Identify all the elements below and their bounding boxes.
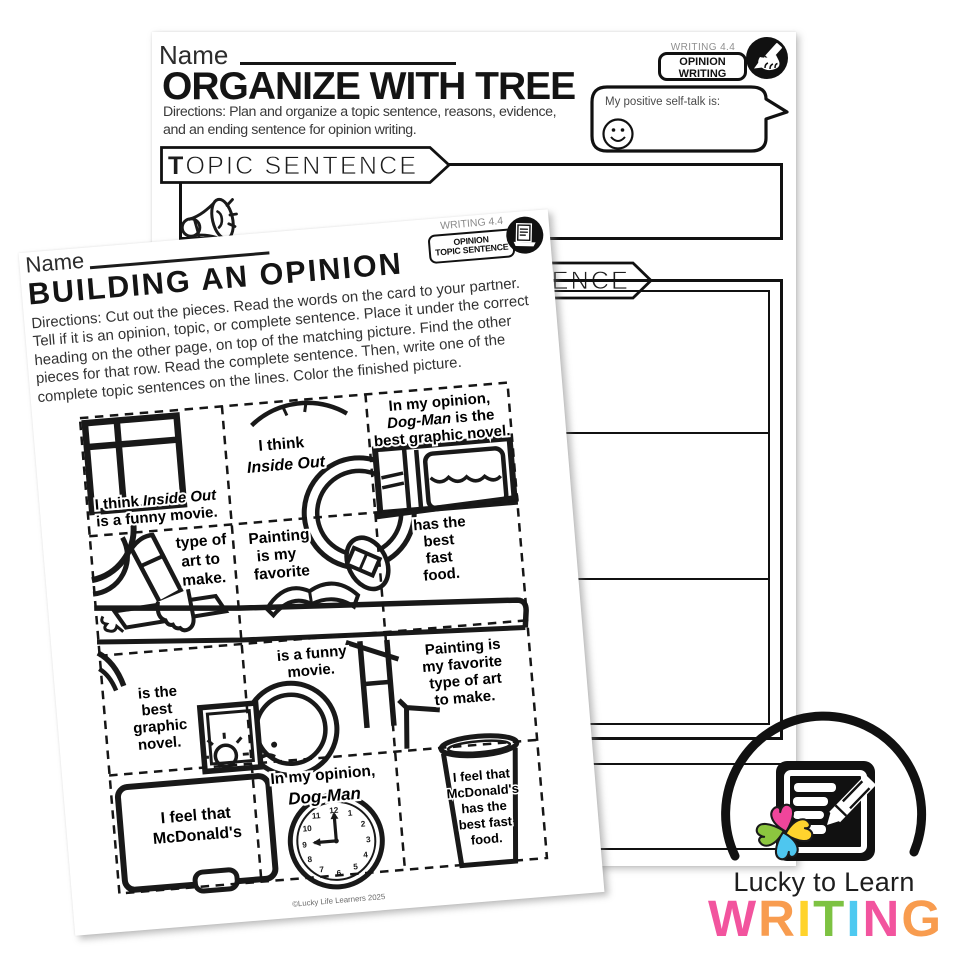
svg-text:is the: is the (137, 683, 177, 703)
svg-text:food.: food. (470, 830, 503, 848)
svg-text:My positive self-talk is:: My positive self-talk is: (605, 96, 720, 108)
svg-text:Painting: Painting (248, 526, 310, 548)
svg-text:has the: has the (413, 513, 467, 534)
svg-text:type of: type of (175, 531, 228, 552)
svg-text:art to: art to (181, 551, 221, 571)
svg-text:movie.: movie. (287, 660, 336, 681)
svg-text:to make.: to make. (434, 687, 496, 709)
svg-text:food.: food. (423, 565, 461, 585)
svg-text:WRITING: WRITING (708, 890, 943, 947)
svg-text:I think: I think (258, 434, 305, 455)
svg-text:is my: is my (256, 545, 297, 565)
svg-text:novel.: novel. (137, 733, 182, 754)
svg-text:TOPIC SENTENCE: TOPIC SENTENCE (168, 152, 418, 180)
svg-text:favorite: favorite (253, 562, 311, 584)
svg-text:make.: make. (182, 569, 227, 590)
svg-text:Inside Out: Inside Out (246, 453, 326, 476)
svg-text:11: 11 (311, 811, 321, 821)
svg-text:10: 10 (302, 824, 312, 834)
